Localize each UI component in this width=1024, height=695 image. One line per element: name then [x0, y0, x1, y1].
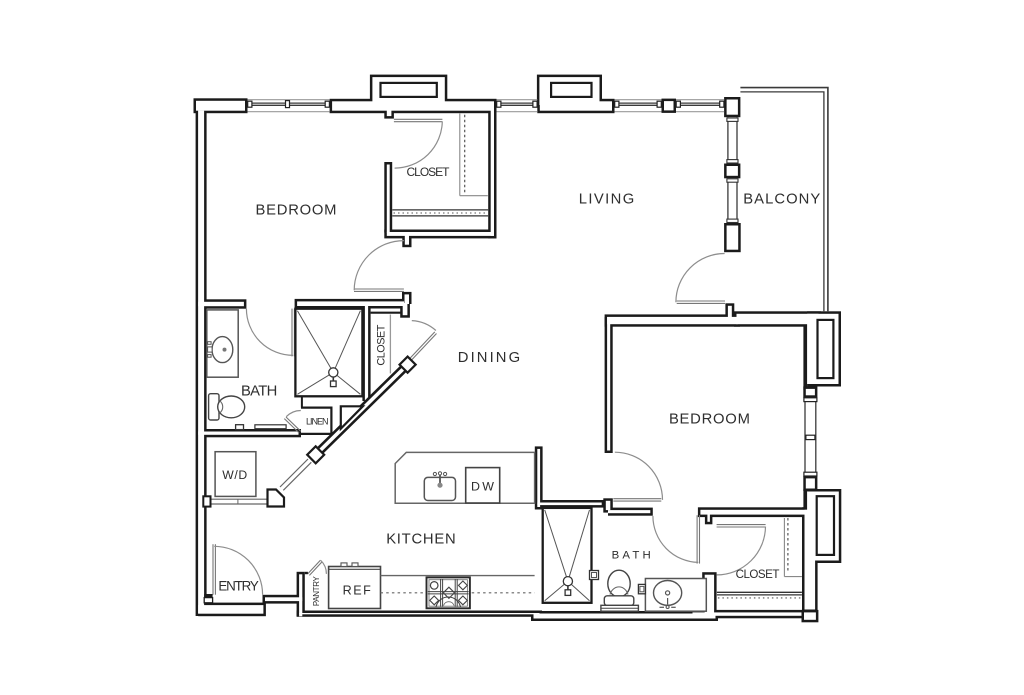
svg-text:W/D: W/D — [222, 468, 248, 482]
svg-text:LINEN: LINEN — [306, 417, 328, 427]
svg-text:REF: REF — [343, 583, 373, 597]
svg-text:DW: DW — [471, 479, 496, 493]
svg-text:BALCONY: BALCONY — [743, 192, 821, 208]
svg-text:BEDROOM: BEDROOM — [669, 412, 751, 428]
svg-text:BEDROOM: BEDROOM — [256, 203, 338, 219]
svg-text:PANTRY: PANTRY — [312, 575, 321, 606]
svg-text:BATH: BATH — [612, 549, 654, 561]
svg-text:CLOSET: CLOSET — [375, 324, 387, 365]
svg-text:ENTRY: ENTRY — [218, 579, 258, 594]
svg-text:CLOSET: CLOSET — [406, 165, 450, 179]
svg-text:DINING: DINING — [458, 350, 522, 366]
svg-text:KITCHEN: KITCHEN — [386, 531, 456, 547]
svg-text:BATH: BATH — [241, 384, 277, 400]
svg-text:CLOSET: CLOSET — [736, 568, 780, 581]
svg-text:LIVING: LIVING — [579, 192, 636, 208]
